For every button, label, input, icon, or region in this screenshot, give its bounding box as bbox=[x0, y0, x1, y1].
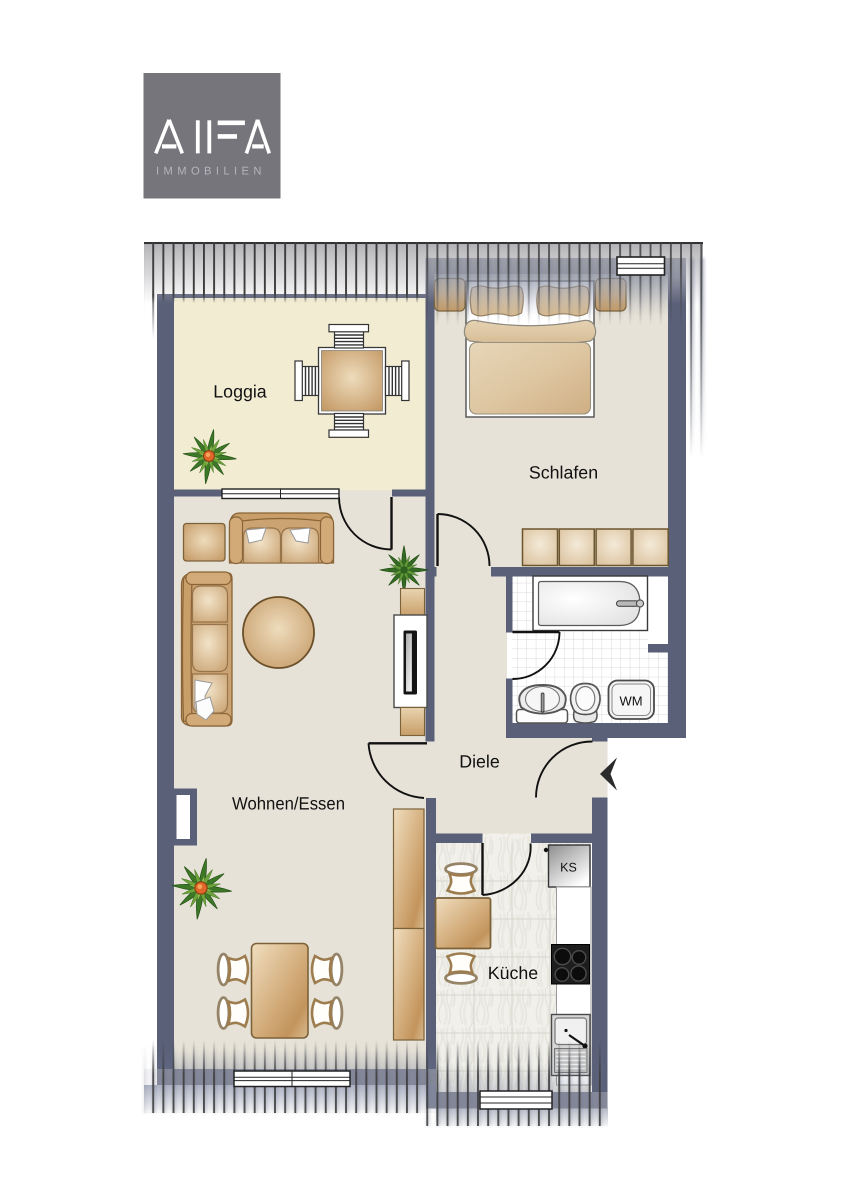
svg-text:Wohnen/Essen: Wohnen/Essen bbox=[232, 794, 345, 814]
svg-text:IMMOBILIEN: IMMOBILIEN bbox=[156, 166, 266, 178]
svg-text:WM: WM bbox=[619, 694, 642, 709]
svg-text:KS: KS bbox=[560, 861, 577, 875]
svg-text:Schlafen: Schlafen bbox=[529, 463, 598, 483]
svg-text:Diele: Diele bbox=[459, 752, 500, 772]
svg-text:Loggia: Loggia bbox=[213, 382, 267, 402]
svg-text:Küche: Küche bbox=[488, 963, 539, 983]
